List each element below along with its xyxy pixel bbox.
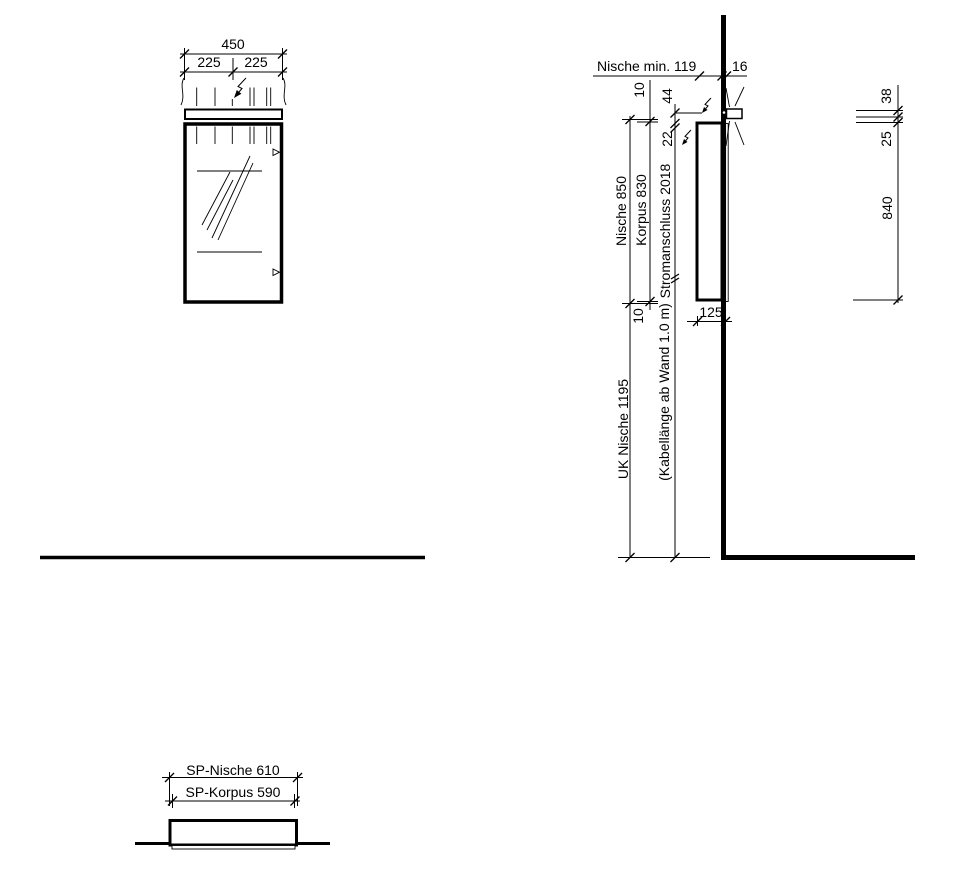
dim-label-width-left: 225 [197, 54, 221, 70]
wall-hatch-lines-top [197, 88, 271, 107]
break-mark-curve [181, 78, 184, 105]
light-fixture-front [185, 110, 282, 120]
dim-label-stromanschluss-2018: Stromanschluss 2018 [657, 163, 673, 298]
front-view: 450 225 225 [40, 36, 425, 558]
dim-label-22: 22 [659, 131, 675, 147]
cabinet-body-front [185, 124, 282, 302]
installation-drawing: 450 225 225 [0, 0, 953, 886]
cabinet-body-side [697, 123, 722, 300]
dim-label-kabellaenge: (Kabellänge ab Wand 1.0 m) [656, 303, 672, 481]
technical-drawing-page: 450 225 225 [0, 0, 953, 886]
dim-label-38: 38 [878, 88, 894, 104]
dim-label-wall-thickness: 16 [732, 58, 748, 74]
mirror-door-plan [172, 846, 295, 850]
dim-label-sp-korpus-590: SP-Korpus 590 [186, 784, 281, 800]
bottom-view: SP-Nische 610 SP-Korpus 590 [135, 762, 330, 849]
dim-label-sp-nische-610: SP-Nische 610 [186, 762, 280, 778]
dim-label-44: 44 [659, 88, 675, 104]
dim-label-25: 25 [878, 131, 894, 147]
dim-label-840: 840 [879, 196, 895, 220]
side-view: Nische min. 119 16 [593, 15, 915, 562]
dim-label-offset-top-10: 10 [631, 82, 647, 98]
light-fixture-side [727, 109, 743, 119]
cabinet-body-plan [170, 821, 297, 846]
dim-label-niche-min-depth: Nische min. 119 [597, 58, 697, 74]
lightning-bolt-icon [702, 98, 711, 113]
dim-label-offset-bottom-10: 10 [630, 308, 646, 324]
lightning-bolt-icon [234, 78, 246, 98]
dim-label-uk-nische-1195: UK Nische 1195 [615, 379, 631, 479]
cable-outlet-circle [722, 111, 726, 115]
dim-label-width-right: 225 [244, 54, 268, 70]
mirror-door-side [726, 124, 729, 302]
break-mark-curve [283, 78, 286, 105]
dim-label-korpus-830: Korpus 830 [633, 174, 649, 246]
dim-label-niche-850: Nische 850 [613, 176, 629, 246]
dim-label-125: 125 [699, 304, 723, 320]
lightning-bolt-icon [682, 130, 691, 145]
dim-label-width-total: 450 [221, 36, 245, 52]
